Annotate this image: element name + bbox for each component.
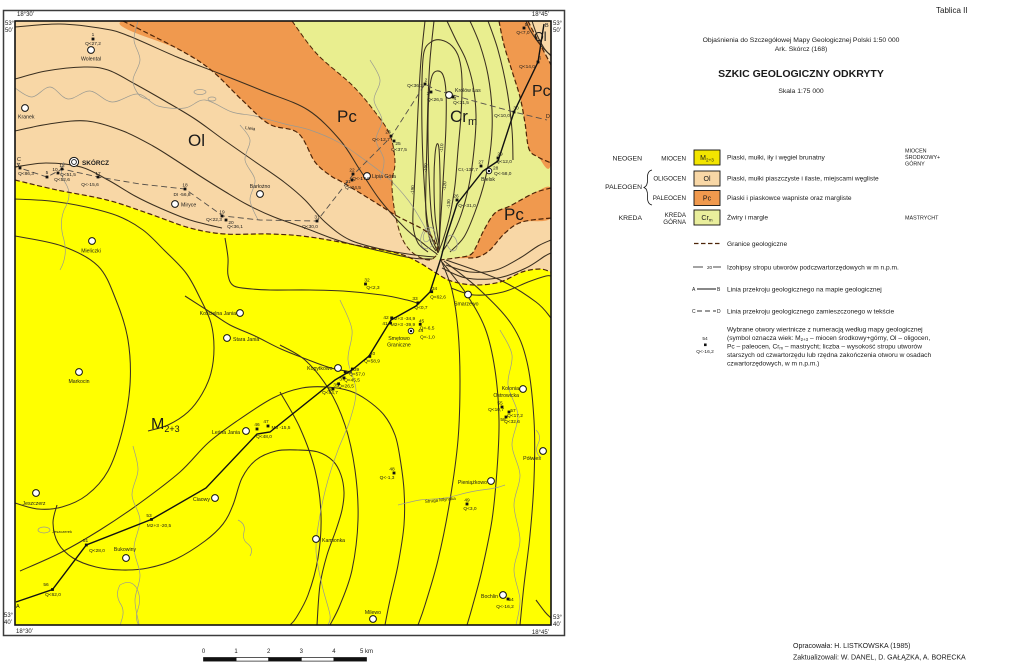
svg-text:1: 1 xyxy=(92,32,95,38)
svg-text:Kamionka: Kamionka xyxy=(322,538,345,544)
svg-text:Ostrowicka: Ostrowicka xyxy=(493,393,519,399)
svg-text:5: 5 xyxy=(46,170,49,176)
svg-text:-110: -110 xyxy=(439,143,445,153)
svg-text:Q<0,7: Q<0,7 xyxy=(414,305,428,311)
svg-text:Milewo: Milewo xyxy=(365,610,381,616)
svg-text:Q<-17,0: Q<-17,0 xyxy=(352,176,370,182)
svg-text:Q<10,0: Q<10,0 xyxy=(494,113,510,119)
svg-text:53°: 53° xyxy=(5,21,15,27)
svg-text:Piaski, mułki piaszczyste i il: Piaski, mułki piaszczyste i ilaste, miej… xyxy=(727,176,879,183)
svg-text:-130: -130 xyxy=(446,199,452,209)
svg-text:Q<51,5: Q<51,5 xyxy=(60,172,76,178)
svg-text:Q<45,5: Q<45,5 xyxy=(344,378,360,384)
svg-text:Q<32,6: Q<32,6 xyxy=(504,419,520,425)
svg-text:NEOGEN: NEOGEN xyxy=(613,156,643,163)
svg-text:Kranek: Kranek xyxy=(18,115,35,121)
svg-text:49: 49 xyxy=(464,498,470,504)
svg-text:Q<24,5: Q<24,5 xyxy=(345,185,361,191)
svg-text:53°: 53° xyxy=(553,21,563,27)
svg-text:Opracowała: H. LISTKOWSKA (198: Opracowała: H. LISTKOWSKA (1985) xyxy=(793,643,911,650)
svg-text:Piaski, mułki, iły i węgiel br: Piaski, mułki, iły i węgiel brunatny xyxy=(727,155,826,162)
svg-text:Smętowo: Smętowo xyxy=(388,336,410,342)
svg-text:Pc: Pc xyxy=(532,83,551,100)
svg-text:SKÓRCZ: SKÓRCZ xyxy=(82,158,109,167)
svg-text:Q<-12,7: Q<-12,7 xyxy=(372,137,390,143)
svg-text:Ol: Ol xyxy=(704,176,711,183)
svg-text:Q<2,3: Q<2,3 xyxy=(366,285,380,291)
svg-text:3: 3 xyxy=(427,91,430,97)
svg-text:PALEOGEN: PALEOGEN xyxy=(605,184,642,191)
svg-text:starszych od czwartorzędu lub: starszych od czwartorzędu lub rzędna zak… xyxy=(727,352,931,359)
svg-text:30: 30 xyxy=(513,106,519,112)
svg-text:54: 54 xyxy=(508,597,514,603)
svg-text:18: 18 xyxy=(182,183,188,189)
svg-text:Q<22,3: Q<22,3 xyxy=(206,217,222,223)
svg-text:C: C xyxy=(17,157,21,163)
svg-text:MASTRYCHT: MASTRYCHT xyxy=(905,216,939,222)
svg-text:53°: 53° xyxy=(4,613,14,619)
svg-text:32: 32 xyxy=(364,278,370,284)
svg-text:12: 12 xyxy=(59,163,65,169)
svg-text:Objaśnienia do Szczegółowej Ma: Objaśnienia do Szczegółowej Mapy Geologi… xyxy=(703,37,900,44)
svg-text:50’: 50’ xyxy=(553,28,561,34)
svg-text:41: 41 xyxy=(382,321,388,327)
svg-text:Q<64,7: Q<64,7 xyxy=(322,390,338,396)
svg-text:Mieliczki: Mieliczki xyxy=(81,249,101,255)
svg-text:PALEOCEN: PALEOCEN xyxy=(653,195,686,202)
svg-text:Q<17,2: Q<17,2 xyxy=(507,413,523,419)
svg-text:20: 20 xyxy=(707,265,713,270)
svg-text:56: 56 xyxy=(43,582,49,588)
svg-text:45: 45 xyxy=(419,319,425,325)
svg-text:42: 42 xyxy=(383,315,389,321)
svg-text:Pieniążkowo: Pieniążkowo xyxy=(458,480,487,486)
svg-text:Q<7,0: Q<7,0 xyxy=(516,30,530,36)
svg-text:-100: -100 xyxy=(423,163,429,173)
svg-text:SZKIC GEOLOGICZNY ODKRYTY: SZKIC GEOLOGICZNY ODKRYTY xyxy=(718,68,884,80)
svg-text:Pc: Pc xyxy=(703,196,712,203)
svg-text:Linia przekroju geologicznego: Linia przekroju geologicznego zamieszczo… xyxy=(727,309,894,316)
svg-text:Granice geologiczne: Granice geologiczne xyxy=(727,241,787,248)
svg-text:D: D xyxy=(717,309,721,315)
svg-text:Smarzewo: Smarzewo xyxy=(454,302,479,308)
svg-text:Cr,-137,7: Cr,-137,7 xyxy=(458,167,478,173)
svg-text:54: 54 xyxy=(702,336,708,342)
svg-text:Kościelna Jania: Kościelna Jania xyxy=(200,311,236,317)
svg-text:Pc: Pc xyxy=(337,107,357,126)
svg-text:Q<27,2: Q<27,2 xyxy=(85,41,101,47)
svg-text:47: 47 xyxy=(263,419,269,425)
svg-text:Ark. Skórcz (168): Ark. Skórcz (168) xyxy=(775,46,828,53)
svg-text:33: 33 xyxy=(412,296,418,302)
svg-text:19: 19 xyxy=(219,210,225,216)
svg-text:Półwieś: Półwieś xyxy=(523,456,541,462)
svg-text:Linia przekroju geologicznego: Linia przekroju geologicznego na mapie g… xyxy=(727,287,882,294)
svg-text:Q<62,0: Q<62,0 xyxy=(45,592,61,598)
svg-text:Q<31,5: Q<31,5 xyxy=(453,100,469,106)
svg-text:18°30’: 18°30’ xyxy=(16,629,33,635)
svg-text:23: 23 xyxy=(385,130,391,136)
svg-text:5: 5 xyxy=(525,22,528,28)
svg-text:Markocin: Markocin xyxy=(68,379,89,385)
svg-text:Q<30,0: Q<30,0 xyxy=(302,224,318,230)
svg-text:55: 55 xyxy=(497,401,503,407)
svg-text:Ol: Ol xyxy=(188,131,205,150)
svg-text:MIOCEN: MIOCEN xyxy=(905,149,927,155)
svg-text:M2+3 -34,9: M2+3 -34,9 xyxy=(391,316,416,322)
svg-text:21: 21 xyxy=(345,179,351,185)
svg-text:27: 27 xyxy=(478,160,484,166)
svg-text:Graniczne: Graniczne xyxy=(387,343,411,349)
svg-text:Q<12,0: Q<12,0 xyxy=(496,159,512,165)
svg-text:Wybrane otwory wiertnicze z nu: Wybrane otwory wiertnicze z numeracją we… xyxy=(727,327,923,334)
svg-text:5 km: 5 km xyxy=(360,649,373,655)
svg-text:Bielsk: Bielsk xyxy=(481,177,495,183)
svg-text:53°: 53° xyxy=(553,615,563,621)
svg-text:Q<62,6: Q<62,6 xyxy=(430,295,446,301)
svg-text:Q<86,3: Q<86,3 xyxy=(18,171,34,177)
svg-text:Królów Las: Królów Las xyxy=(455,88,481,94)
svg-text:Bukowiny: Bukowiny xyxy=(114,547,137,553)
svg-text:40’: 40’ xyxy=(4,620,12,626)
svg-text:Q<36,3: Q<36,3 xyxy=(407,83,423,89)
svg-text:Q<26,5: Q<26,5 xyxy=(338,384,354,390)
svg-text:51: 51 xyxy=(83,538,89,544)
svg-text:Miryce: Miryce xyxy=(181,203,196,209)
svg-text:40’: 40’ xyxy=(553,622,561,628)
svg-text:Q<14,0: Q<14,0 xyxy=(519,64,535,70)
svg-text:Izohipsy stropu utworów podczw: Izohipsy stropu utworów podczwartorzędow… xyxy=(727,265,899,272)
svg-text:Q<28,0: Q<28,0 xyxy=(89,548,105,554)
svg-text:Ol: Ol xyxy=(534,30,547,44)
svg-text:18°45’: 18°45’ xyxy=(532,630,549,636)
svg-text:-190: -190 xyxy=(410,185,416,195)
svg-text:M2+3 -20,5: M2+3 -20,5 xyxy=(147,523,172,529)
svg-text:A: A xyxy=(16,604,20,610)
svg-text:Q<-16,2: Q<-16,2 xyxy=(696,349,714,355)
svg-text:Żwiry i margle: Żwiry i margle xyxy=(727,213,768,222)
svg-text:26: 26 xyxy=(453,194,459,200)
svg-text:ŚRODKOWY+: ŚRODKOWY+ xyxy=(905,153,940,161)
svg-text:Q<37,5: Q<37,5 xyxy=(391,147,407,153)
svg-text:Piaski i piaskowce wapniste or: Piaski i piaskowce wapniste oraz marglis… xyxy=(727,195,852,202)
svg-text:Kopytkowo: Kopytkowo xyxy=(307,366,332,372)
svg-text:50’: 50’ xyxy=(5,28,13,34)
svg-text:46: 46 xyxy=(254,422,260,428)
svg-text:22: 22 xyxy=(349,168,355,174)
svg-text:40: 40 xyxy=(370,351,376,357)
svg-text:M3 -15,5: M3 -15,5 xyxy=(272,425,291,431)
svg-text:Q<57,0: Q<57,0 xyxy=(349,372,365,378)
svg-text:czwartorzędowych, w m n.p.m.): czwartorzędowych, w m n.p.m.) xyxy=(727,361,819,368)
svg-text:28: 28 xyxy=(493,166,499,172)
svg-text:Q<-1,3: Q<-1,3 xyxy=(380,475,395,481)
svg-text:Leśna Jania: Leśna Jania xyxy=(212,430,240,436)
svg-text:18°30’: 18°30’ xyxy=(17,12,34,18)
svg-text:34: 34 xyxy=(432,286,438,292)
svg-text:31: 31 xyxy=(314,215,320,221)
svg-text:Q<-31,0: Q<-31,0 xyxy=(458,203,476,209)
svg-text:Ciaowy: Ciaowy xyxy=(193,497,210,503)
svg-text:Wolental: Wolental xyxy=(81,57,101,63)
svg-text:KREDA: KREDA xyxy=(665,212,687,219)
svg-text:Q<10,7: Q<10,7 xyxy=(488,407,504,413)
svg-text:Skala 1:75 000: Skala 1:75 000 xyxy=(778,88,824,95)
svg-text:2: 2 xyxy=(425,78,428,84)
svg-text:Pc – paleocen, Crm – mastrycht: Pc – paleocen, Crm – mastrycht; liczba –… xyxy=(727,344,922,351)
svg-text:44: 44 xyxy=(418,328,424,334)
svg-text:M2+3 -39,9: M2+3 -39,9 xyxy=(391,322,416,328)
svg-text:Q<-58,0: Q<-58,0 xyxy=(494,171,512,177)
svg-text:GÓRNA: GÓRNA xyxy=(663,219,687,226)
svg-text:Q<3,0: Q<3,0 xyxy=(463,506,477,512)
svg-text:Bochlin: Bochlin xyxy=(481,594,498,600)
svg-text:D: D xyxy=(546,114,550,120)
svg-text:Barłożno: Barłożno xyxy=(250,184,271,190)
svg-text:18°45’: 18°45’ xyxy=(532,12,549,18)
svg-text:C: C xyxy=(692,309,696,315)
svg-text:Q<-15,6: Q<-15,6 xyxy=(81,182,99,188)
svg-text:48: 48 xyxy=(389,467,395,473)
svg-text:Q<58,9: Q<58,9 xyxy=(364,359,380,365)
svg-text:Zaktualizowali: W. DANEL, D. G: Zaktualizowali: W. DANEL, D. GAŁĄZKA, A.… xyxy=(793,655,966,662)
svg-text:(symbol oznacza wiek: M2+3 – m: (symbol oznacza wiek: M2+3 – miocen środ… xyxy=(727,335,930,342)
svg-text:Tablica II: Tablica II xyxy=(936,6,968,15)
svg-text:Stara Jania: Stara Jania xyxy=(233,337,259,343)
svg-text:Kolonia: Kolonia xyxy=(502,386,519,392)
svg-text:OLIGOCEN: OLIGOCEN xyxy=(653,176,686,183)
svg-text:GÓRNY: GÓRNY xyxy=(905,161,925,168)
svg-text:Q<26,5: Q<26,5 xyxy=(427,97,443,103)
svg-text:-120: -120 xyxy=(442,181,448,191)
svg-text:Q<48,0: Q<48,0 xyxy=(256,434,272,440)
svg-text:Lipia Góra: Lipia Góra xyxy=(372,174,396,180)
svg-text:Pc: Pc xyxy=(504,205,524,224)
svg-text:53: 53 xyxy=(146,513,152,519)
svg-text:10: 10 xyxy=(52,167,58,173)
svg-text:Jeszczerz: Jeszczerz xyxy=(22,501,45,507)
svg-text:Q<36,1: Q<36,1 xyxy=(227,224,243,230)
svg-text:DI -56,8: DI -56,8 xyxy=(173,192,190,198)
svg-text:B: B xyxy=(545,23,549,29)
svg-text:Q<-1,0: Q<-1,0 xyxy=(420,335,435,341)
svg-text:29: 29 xyxy=(497,152,503,158)
svg-text:6: 6 xyxy=(539,56,542,62)
svg-text:17: 17 xyxy=(95,171,101,177)
svg-text:KREDA: KREDA xyxy=(619,215,643,222)
svg-text:25: 25 xyxy=(395,141,401,147)
svg-text:MIOCEN: MIOCEN xyxy=(661,156,686,163)
svg-text:Jeszczerek: Jeszczerek xyxy=(52,529,72,534)
svg-text:Q<-16,2: Q<-16,2 xyxy=(496,604,514,610)
